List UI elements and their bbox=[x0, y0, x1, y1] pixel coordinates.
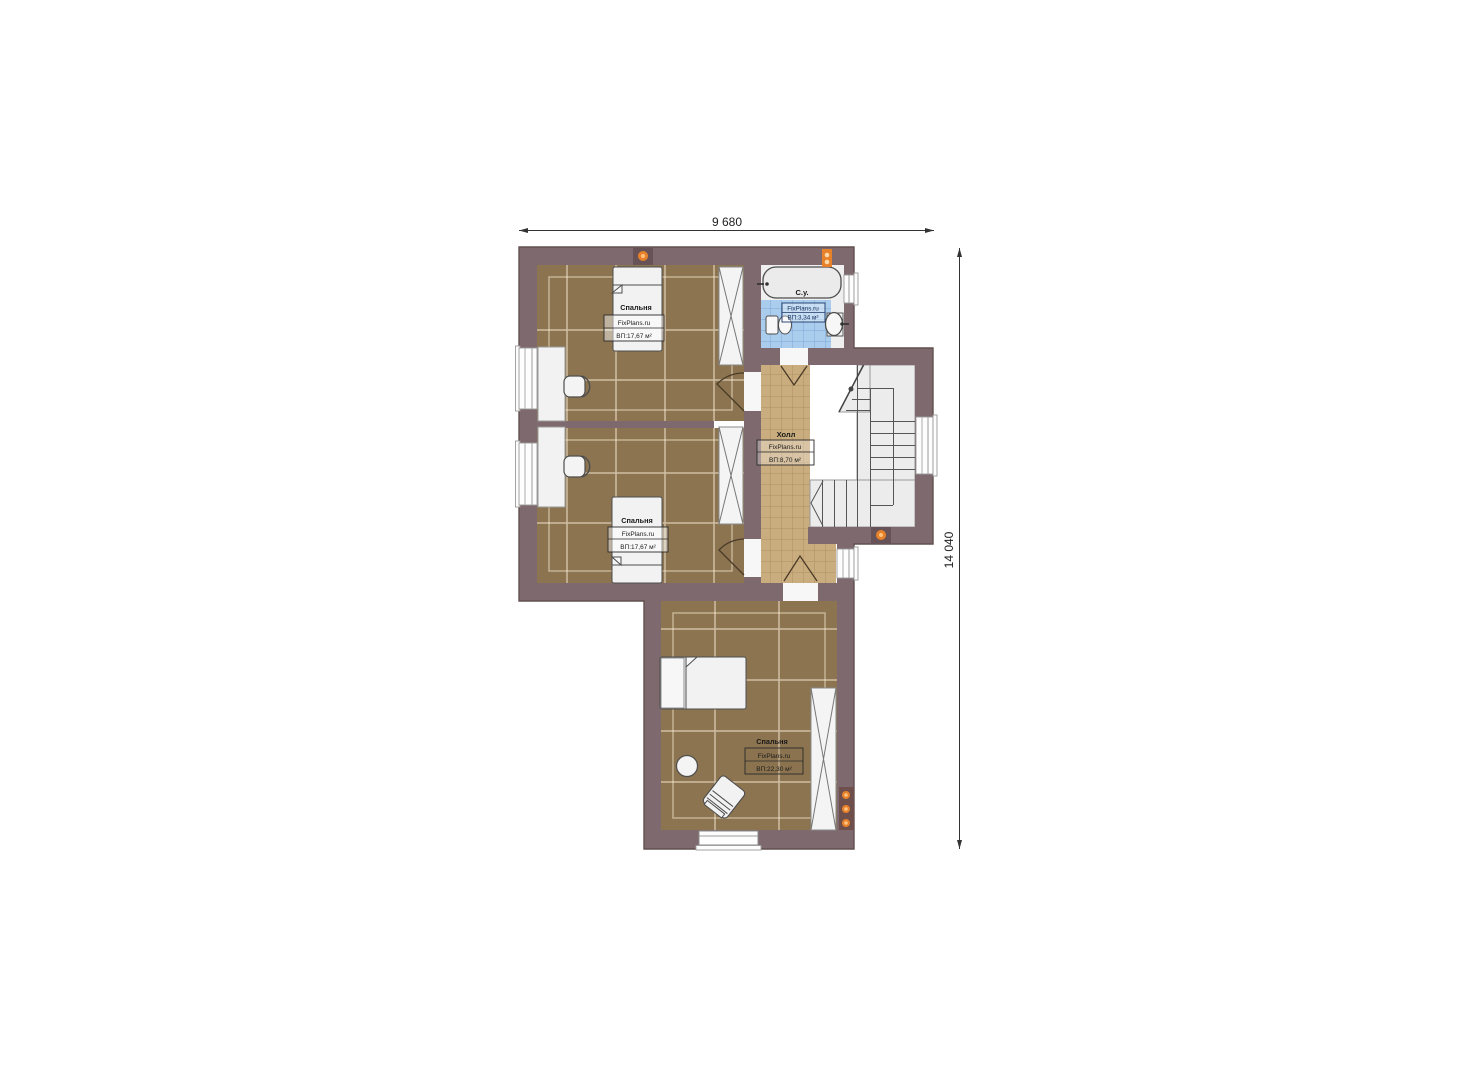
svg-text:Холл: Холл bbox=[777, 430, 796, 439]
svg-text:Спальня: Спальня bbox=[756, 737, 788, 746]
svg-text:ВП:17,67 м²: ВП:17,67 м² bbox=[616, 333, 652, 340]
svg-text:FixPlans.ru: FixPlans.ru bbox=[618, 320, 651, 327]
svg-text:ВП:8,70 м²: ВП:8,70 м² bbox=[769, 457, 802, 464]
svg-text:FixPlans.ru: FixPlans.ru bbox=[769, 444, 802, 451]
svg-text:FixPlans.ru: FixPlans.ru bbox=[758, 753, 791, 760]
svg-text:ВП:22,30 м²: ВП:22,30 м² bbox=[756, 766, 792, 773]
svg-text:14 040: 14 040 bbox=[942, 531, 956, 568]
svg-text:Спальня: Спальня bbox=[620, 303, 652, 312]
svg-text:FixPlans.ru: FixPlans.ru bbox=[622, 531, 655, 538]
svg-text:9 680: 9 680 bbox=[712, 215, 742, 229]
svg-text:ВП:3,34 м²: ВП:3,34 м² bbox=[788, 315, 819, 322]
svg-text:FixPlans.ru: FixPlans.ru bbox=[787, 306, 819, 313]
svg-text:Спальня: Спальня bbox=[621, 516, 653, 525]
svg-text:ВП:17,67 м²: ВП:17,67 м² bbox=[620, 544, 656, 551]
svg-text:С.у.: С.у. bbox=[795, 288, 808, 297]
